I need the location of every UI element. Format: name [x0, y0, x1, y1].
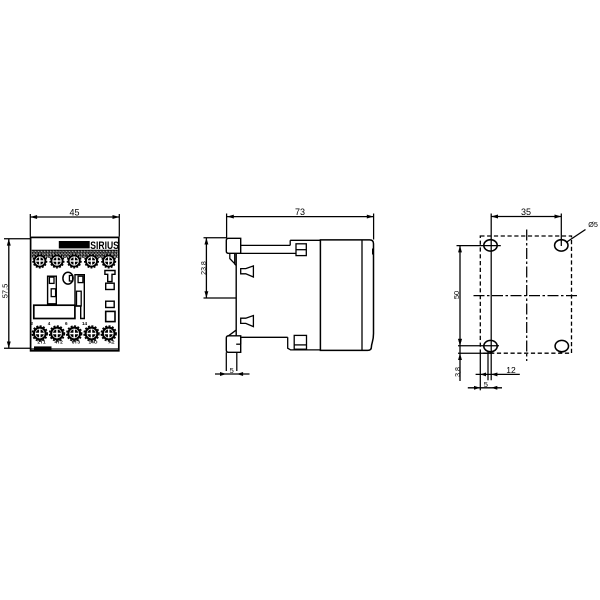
svg-text:5: 5 — [230, 366, 234, 375]
svg-text:14O: 14O — [88, 340, 97, 346]
svg-text:A2: A2 — [108, 340, 114, 346]
svg-text:73: 73 — [295, 207, 305, 217]
svg-text:35: 35 — [521, 207, 531, 217]
svg-text:2T1: 2T1 — [37, 340, 46, 346]
svg-text:6T3: 6T3 — [72, 340, 81, 346]
svg-text:14: 14 — [82, 321, 88, 326]
svg-text:5: 5 — [484, 380, 488, 389]
svg-text:3RT20: 3RT20 — [37, 347, 48, 351]
svg-text:57.5: 57.5 — [0, 284, 9, 299]
svg-text:4T2: 4T2 — [55, 340, 64, 346]
svg-text:2: 2 — [31, 321, 34, 326]
svg-text:45: 45 — [69, 207, 79, 217]
svg-text:4: 4 — [48, 321, 51, 326]
svg-text:23.8: 23.8 — [201, 261, 208, 275]
svg-text:3,8: 3,8 — [455, 367, 462, 377]
svg-text:SIEMENS: SIEMENS — [61, 243, 88, 249]
svg-text:6: 6 — [65, 321, 68, 326]
svg-text:50: 50 — [452, 291, 461, 299]
svg-text:12: 12 — [506, 365, 516, 375]
svg-text:Ø5: Ø5 — [588, 220, 598, 229]
